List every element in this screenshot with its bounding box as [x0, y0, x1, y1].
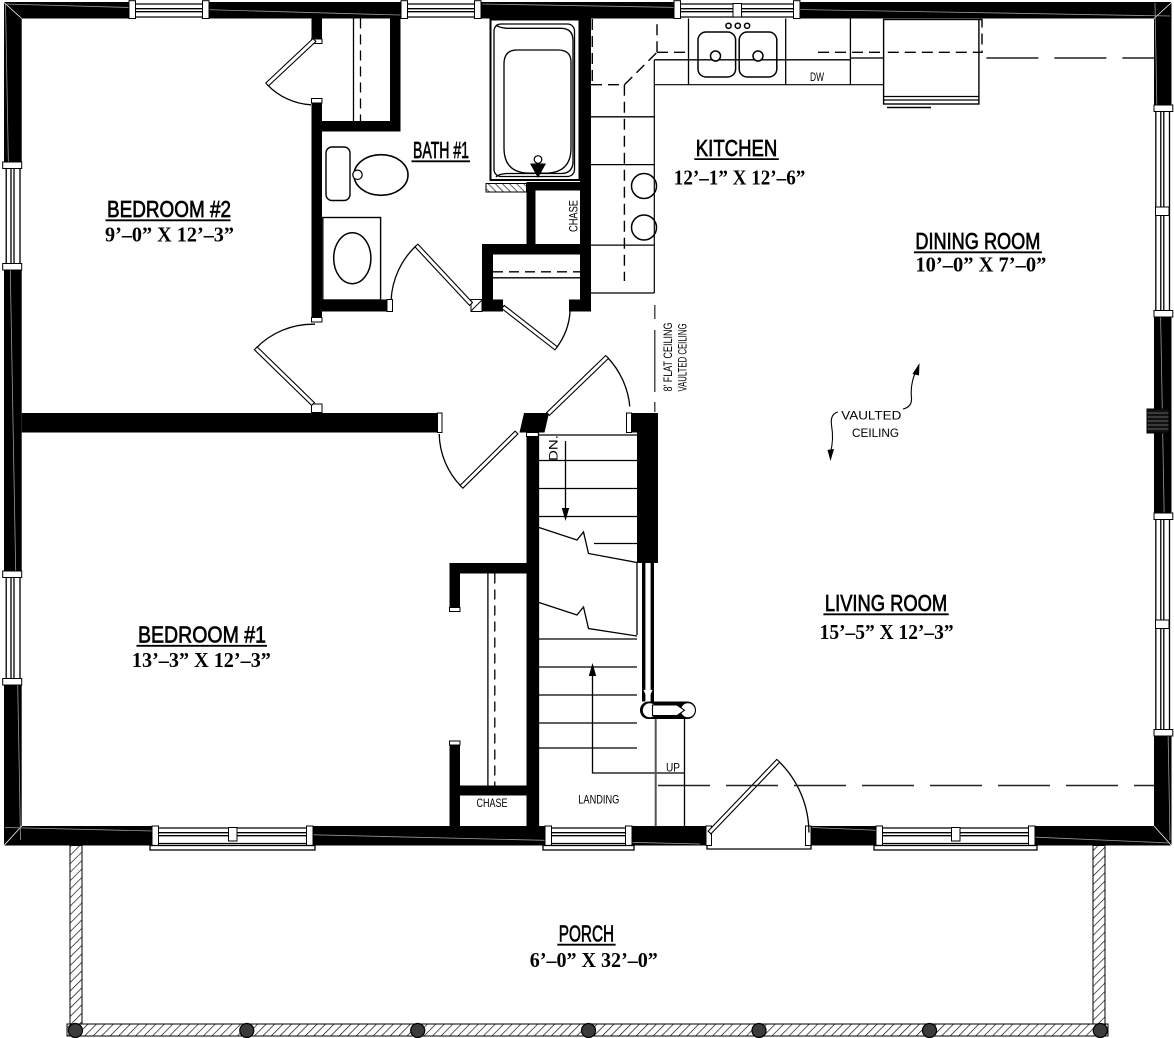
svg-text:VAULTED: VAULTED	[841, 408, 901, 422]
svg-text:DW: DW	[810, 70, 824, 84]
svg-text:CHASE: CHASE	[567, 200, 581, 232]
svg-text:KITCHEN: KITCHEN	[696, 135, 778, 161]
svg-text:LIVING ROOM: LIVING ROOM	[825, 590, 947, 616]
svg-text:DINING ROOM: DINING ROOM	[915, 228, 1040, 254]
svg-text:DN.: DN.	[547, 435, 561, 461]
svg-text:10’–0” X 7’–0”: 10’–0” X 7’–0”	[915, 253, 1046, 277]
svg-text:LANDING: LANDING	[578, 793, 619, 807]
svg-text:CEILING: CEILING	[852, 426, 899, 440]
svg-text:BEDROOM #1: BEDROOM #1	[138, 622, 266, 648]
svg-text:15’–5” X 12’–3”: 15’–5” X 12’–3”	[820, 620, 954, 644]
svg-text:6’–0” X 32’–0”: 6’–0” X 32’–0”	[530, 948, 658, 972]
svg-text:12’–1” X 12’–6”: 12’–1” X 12’–6”	[674, 166, 806, 190]
svg-text:CHASE: CHASE	[477, 796, 508, 810]
svg-text:13’–3” X 12’–3”: 13’–3” X 12’–3”	[132, 648, 271, 672]
svg-text:9’–0” X 12’–3”: 9’–0” X 12’–3”	[105, 223, 234, 247]
svg-text:8’ FLAT CEILING: 8’ FLAT CEILING	[661, 323, 675, 392]
svg-text:BEDROOM #2: BEDROOM #2	[107, 196, 231, 222]
svg-text:BATH #1: BATH #1	[413, 137, 469, 163]
svg-text:PORCH: PORCH	[559, 920, 614, 946]
svg-text:UP: UP	[666, 761, 680, 775]
svg-text:VAULTED CEILING: VAULTED CEILING	[676, 324, 690, 392]
